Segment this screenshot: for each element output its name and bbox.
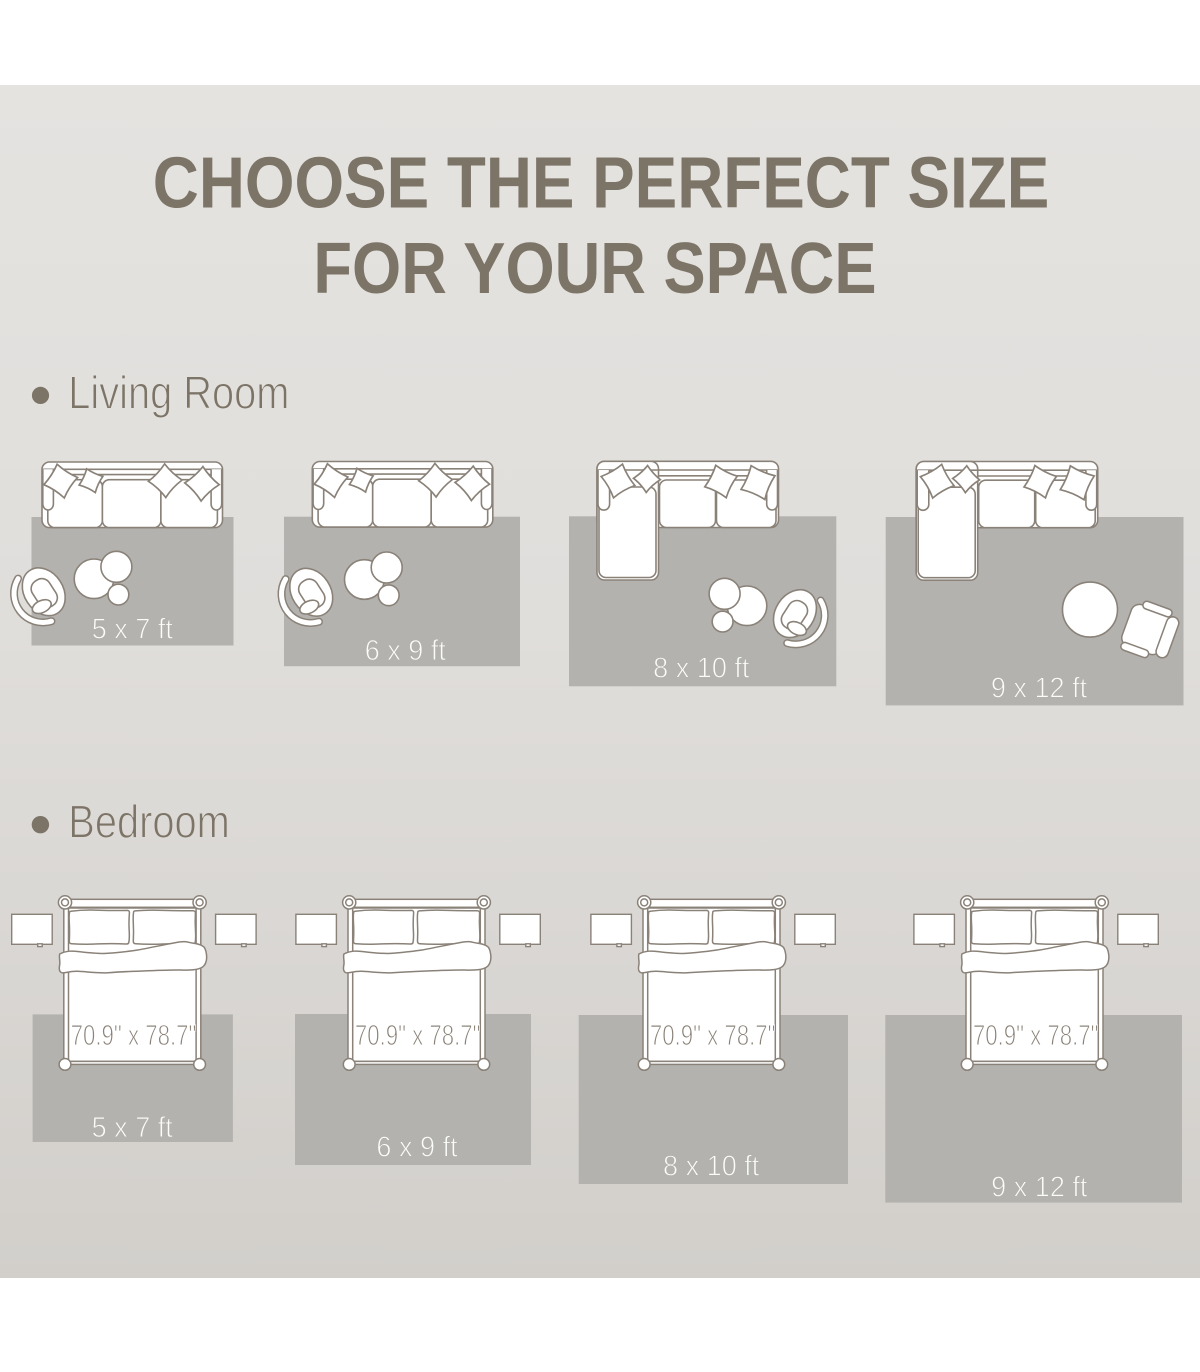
- svg-text:6 x 9 ft: 6 x 9 ft: [365, 634, 446, 666]
- svg-text:8 x 10 ft: 8 x 10 ft: [663, 1150, 760, 1182]
- svg-text:FOR YOUR SPACE: FOR YOUR SPACE: [313, 229, 876, 309]
- svg-text:9 x 12 ft: 9 x 12 ft: [991, 672, 1088, 704]
- svg-text:6 x 9 ft: 6 x 9 ft: [376, 1131, 457, 1163]
- svg-text:CHOOSE THE PERFECT SIZE: CHOOSE THE PERFECT SIZE: [153, 143, 1049, 223]
- svg-text:9 x 12 ft: 9 x 12 ft: [991, 1171, 1088, 1203]
- svg-text:5 x 7 ft: 5 x 7 ft: [92, 613, 173, 645]
- svg-text:Bedroom: Bedroom: [68, 797, 229, 848]
- svg-text:Living Room: Living Room: [68, 368, 289, 419]
- svg-text:8 x 10 ft: 8 x 10 ft: [653, 652, 750, 684]
- svg-text:5 x 7 ft: 5 x 7 ft: [92, 1111, 173, 1143]
